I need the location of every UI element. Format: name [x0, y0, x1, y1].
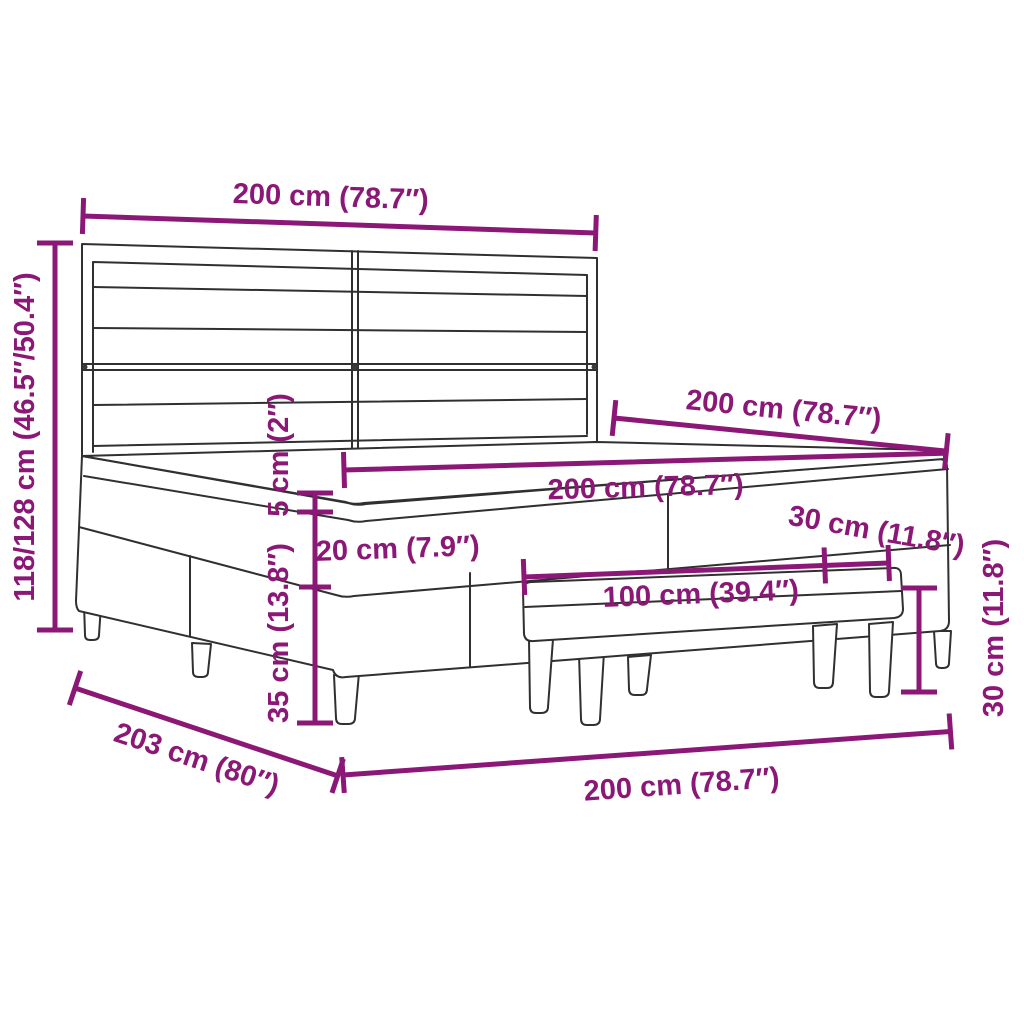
bench-leg	[529, 639, 553, 713]
dim-frame-width: 200 cm (78.7″)	[342, 714, 954, 825]
headboard-button	[352, 364, 358, 370]
bed-leg	[579, 652, 604, 725]
dim-label-base-height: 35 cm (13.8″)	[263, 543, 295, 723]
dim-label-frame-width: 200 cm (78.7″)	[583, 762, 781, 808]
dim-label-topper-thickness: 5 cm (2″)	[263, 393, 295, 517]
diagram-canvas: 200 cm (78.7″) 118/128 cm (46.5″/50.4″) …	[0, 0, 1024, 1024]
headboard-button	[83, 365, 88, 370]
dim-line	[37, 243, 73, 630]
headboard-outline	[82, 244, 597, 477]
dim-label-headboard-width: 200 cm (78.7″)	[232, 178, 429, 216]
bed-leg	[192, 643, 211, 677]
headboard-button	[592, 365, 597, 370]
bed-drawing	[76, 244, 951, 725]
dim-headboard-width: 200 cm (78.7″)	[82, 173, 597, 251]
dim-label-overall-height: 118/128 cm (46.5″/50.4″)	[9, 272, 41, 601]
bench-leg	[869, 622, 893, 697]
bench-leg	[813, 624, 837, 688]
dim-label-mattress-thickness: 20 cm (7.9″)	[315, 530, 480, 568]
dim-label-bench-height: 30 cm (11.8″)	[978, 539, 1010, 717]
bench-leg	[628, 655, 651, 695]
bed-leg	[934, 631, 951, 668]
bed-dimension-diagram: 200 cm (78.7″) 118/128 cm (46.5″/50.4″) …	[0, 0, 1024, 1024]
dim-overall-height: 118/128 cm (46.5″/50.4″)	[9, 243, 73, 630]
bed-leg	[334, 673, 359, 724]
dim-overall-length: 203 cm (80″)	[61, 671, 344, 819]
headboard	[82, 244, 597, 477]
dim-label-mattress-width: 200 cm (78.7″)	[547, 469, 744, 506]
